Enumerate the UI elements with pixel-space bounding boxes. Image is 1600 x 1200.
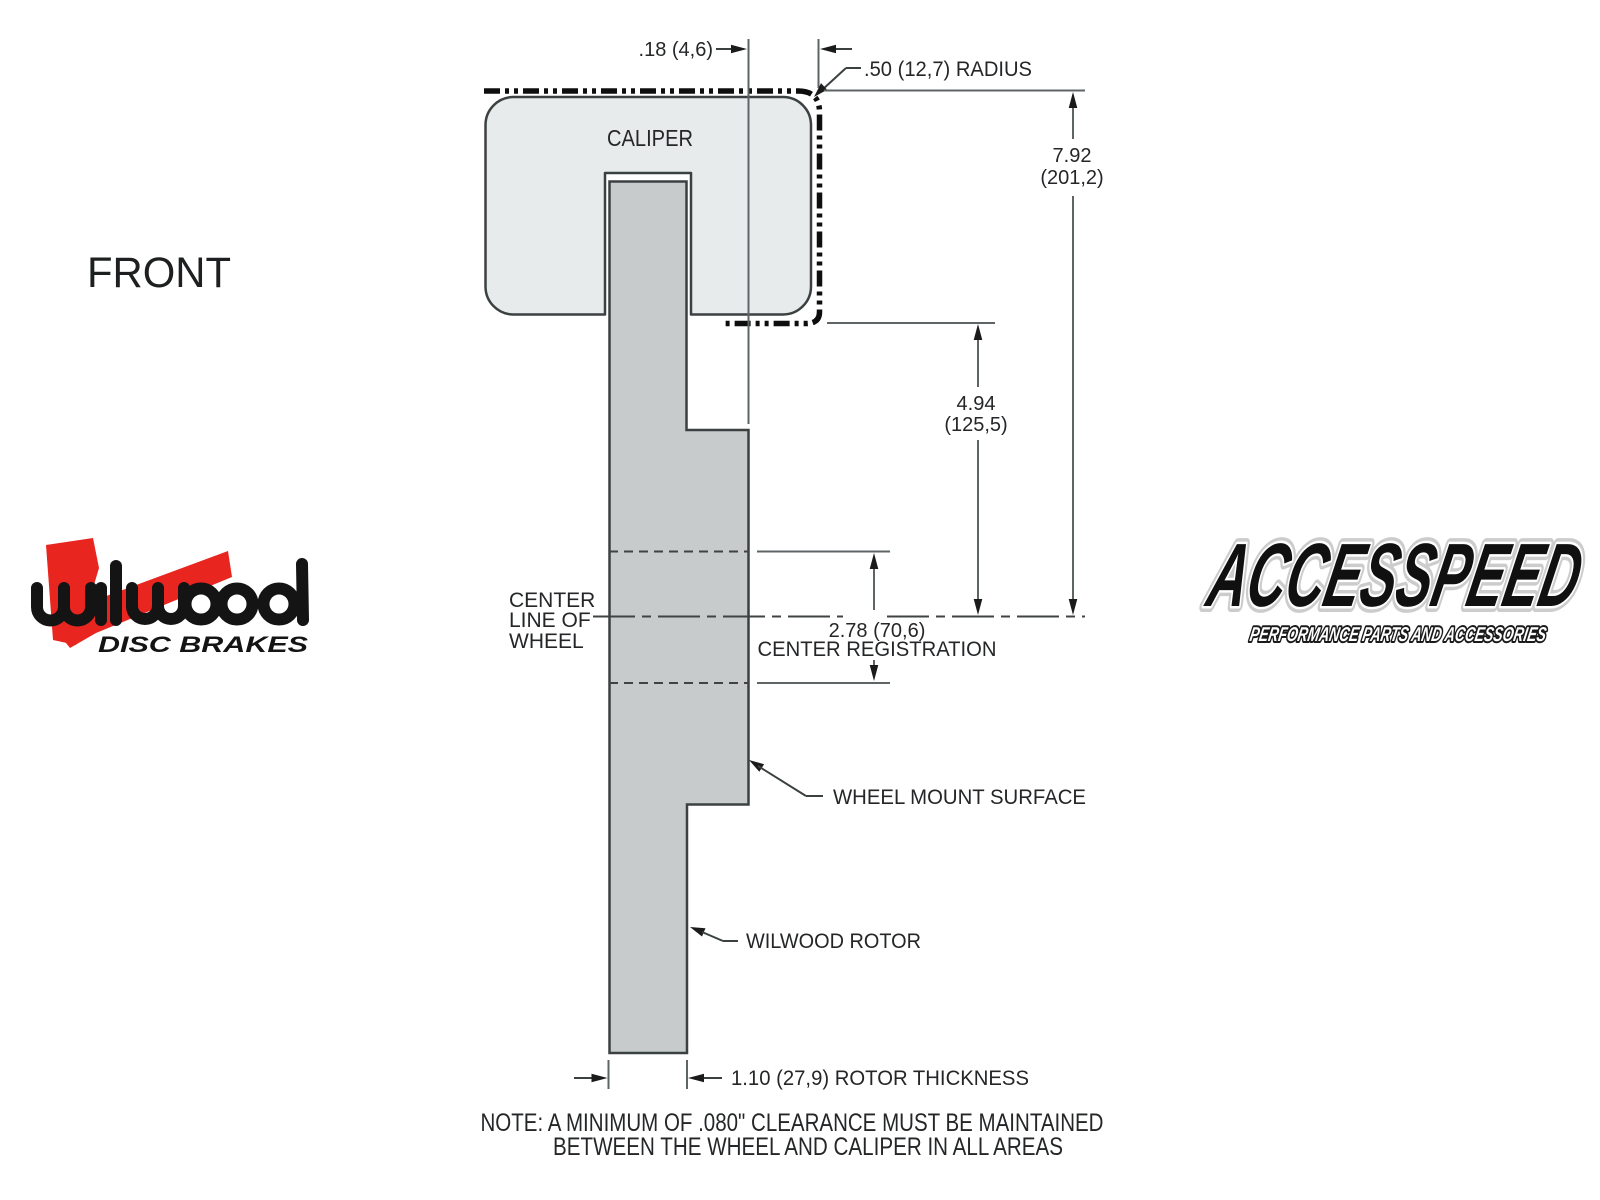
svg-text:BETWEEN THE WHEEL AND CALIPER: BETWEEN THE WHEEL AND CALIPER IN ALL ARE…	[553, 1133, 1063, 1161]
svg-text:CENTER REGISTRATION: CENTER REGISTRATION	[758, 638, 997, 661]
svg-text:LINE OF: LINE OF	[509, 609, 591, 632]
svg-text:WHEEL: WHEEL	[509, 630, 584, 653]
svg-text:(201,2): (201,2)	[1040, 167, 1103, 189]
svg-text:WHEEL MOUNT SURFACE: WHEEL MOUNT SURFACE	[833, 786, 1086, 809]
svg-text:FRONT: FRONT	[87, 249, 231, 297]
svg-text:WILWOOD ROTOR: WILWOOD ROTOR	[746, 930, 921, 953]
svg-text:PERFORMANCE PARTS AND ACCESSOR: PERFORMANCE PARTS AND ACCESSORIES	[1248, 624, 1548, 646]
svg-text:4.94: 4.94	[957, 393, 996, 415]
svg-text:.50 (12,7) RADIUS: .50 (12,7) RADIUS	[864, 58, 1032, 81]
svg-text:CALIPER: CALIPER	[607, 125, 693, 151]
svg-text:DISC BRAKES: DISC BRAKES	[98, 632, 308, 657]
svg-text:1.10 (27,9) ROTOR THICKNESS: 1.10 (27,9) ROTOR THICKNESS	[731, 1067, 1029, 1090]
svg-text:(125,5): (125,5)	[944, 414, 1007, 436]
svg-text:.18 (4,6): .18 (4,6)	[639, 39, 713, 61]
svg-text:7.92: 7.92	[1053, 145, 1092, 167]
svg-text:ACCESSPEED: ACCESSPEED	[1199, 526, 1591, 626]
